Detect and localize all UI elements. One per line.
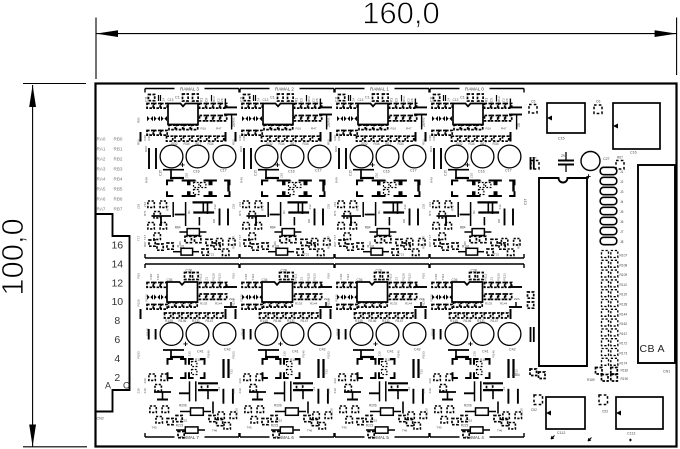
svg-text:RA3: RA3: [97, 167, 106, 172]
svg-text:R67: R67: [617, 156, 623, 160]
svg-text:C113: C113: [627, 432, 635, 436]
svg-text:C: C: [640, 343, 648, 355]
svg-text:C16: C16: [630, 151, 637, 155]
svg-text:RA5: RA5: [97, 187, 106, 192]
svg-text:C112: C112: [557, 431, 565, 435]
svg-text:16: 16: [111, 240, 123, 252]
svg-text:RAMAL 5: RAMAL 5: [370, 435, 389, 440]
svg-text:A: A: [658, 343, 665, 355]
svg-text:RAMAL 2: RAMAL 2: [275, 86, 294, 91]
svg-text:CN2: CN2: [97, 417, 104, 421]
svg-text:RB4: RB4: [114, 177, 123, 182]
svg-text:6: 6: [114, 334, 120, 346]
svg-text:R128: R128: [620, 303, 628, 307]
svg-text:RA1: RA1: [97, 147, 106, 152]
svg-text:CN1: CN1: [663, 370, 670, 374]
svg-text:C5: C5: [531, 100, 535, 104]
svg-text:RAMAL 3: RAMAL 3: [180, 86, 199, 91]
svg-text:J6: J6: [620, 220, 624, 224]
svg-text:C52: C52: [531, 408, 537, 412]
svg-text:8: 8: [114, 315, 120, 327]
svg-text:R110: R110: [620, 283, 628, 287]
svg-text:R174: R174: [620, 361, 628, 365]
svg-text:R167: R167: [620, 332, 628, 336]
svg-text:Z9: Z9: [561, 154, 565, 158]
svg-text:C6: C6: [596, 100, 600, 104]
svg-text:J8: J8: [620, 240, 624, 244]
svg-text:RAMAL 0: RAMAL 0: [465, 86, 484, 91]
svg-text:J7: J7: [620, 230, 624, 234]
svg-text:C53: C53: [602, 410, 608, 414]
svg-text:R162: R162: [620, 322, 628, 326]
svg-text:RA2: RA2: [97, 157, 106, 162]
svg-text:A: A: [105, 381, 111, 391]
svg-text:4: 4: [114, 353, 120, 365]
svg-text:J1: J1: [620, 170, 624, 174]
svg-text:2: 2: [114, 372, 120, 384]
svg-text:J3: J3: [620, 190, 624, 194]
svg-text:RAMAL 7: RAMAL 7: [180, 435, 199, 440]
svg-text:RB7: RB7: [114, 207, 123, 212]
svg-text:160,0: 160,0: [362, 0, 440, 31]
svg-text:RAMAL 1: RAMAL 1: [370, 86, 389, 91]
svg-text:B: B: [648, 343, 655, 355]
svg-text:RA7: RA7: [97, 207, 106, 212]
svg-text:12: 12: [111, 277, 123, 289]
svg-text:C27: C27: [603, 157, 610, 161]
svg-text:RB5: RB5: [114, 187, 123, 192]
svg-text:RA0: RA0: [97, 137, 106, 142]
svg-text:C: C: [123, 381, 130, 391]
svg-text:R182: R182: [621, 369, 629, 373]
svg-text:C37: C37: [524, 199, 528, 205]
svg-text:C15: C15: [558, 137, 565, 141]
svg-text:RB3: RB3: [114, 167, 123, 172]
svg-text:RB0: RB0: [114, 137, 123, 142]
svg-text:RAMAL 4: RAMAL 4: [465, 435, 484, 440]
svg-text:14: 14: [111, 258, 123, 270]
svg-text:R173: R173: [620, 352, 628, 356]
svg-text:R144: R144: [620, 312, 628, 316]
svg-text:R108: R108: [620, 263, 628, 267]
svg-text:RB6: RB6: [114, 197, 123, 202]
svg-text:R190: R190: [621, 377, 629, 381]
svg-text:R172: R172: [620, 342, 628, 346]
svg-text:R107: R107: [620, 254, 628, 258]
svg-text:RB1: RB1: [114, 147, 123, 152]
svg-text:R189: R189: [587, 378, 595, 382]
svg-text:J2: J2: [620, 180, 624, 184]
svg-text:100,0: 100,0: [0, 218, 30, 296]
svg-text:RB2: RB2: [114, 157, 123, 162]
svg-text:RAMAL 6: RAMAL 6: [275, 435, 294, 440]
svg-text:J4: J4: [620, 200, 624, 204]
svg-text:RA4: RA4: [97, 177, 106, 182]
svg-text:R184: R184: [512, 373, 520, 377]
svg-text:mute: mute: [530, 156, 537, 160]
svg-text:J5: J5: [620, 210, 624, 214]
svg-text:R109: R109: [620, 273, 628, 277]
svg-text:R119: R119: [620, 293, 628, 297]
svg-text:RA6: RA6: [97, 197, 106, 202]
svg-text:10: 10: [111, 296, 123, 308]
